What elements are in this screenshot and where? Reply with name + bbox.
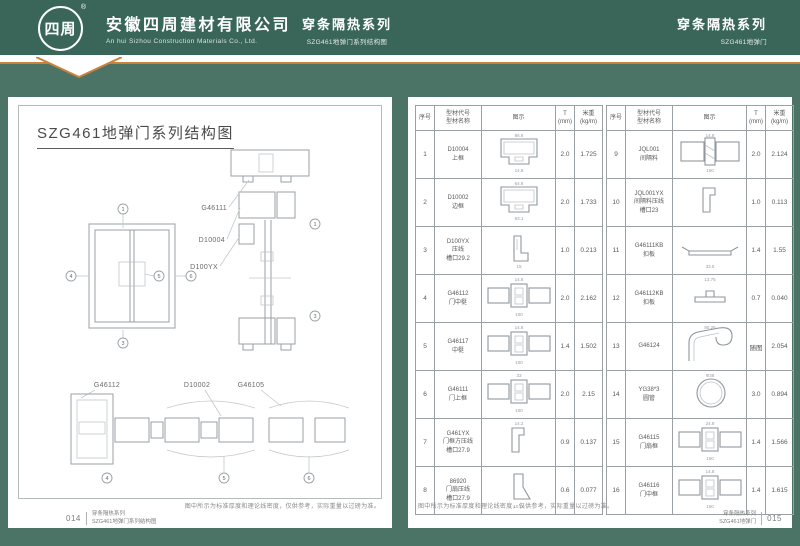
structure-diagram: 1345613G46111D10004D100YXG46112D10002G46… [19, 106, 381, 498]
page-number: 014 [66, 514, 81, 523]
profile-illustration: Φ38 [673, 371, 747, 419]
footer-divider [86, 512, 87, 525]
thickness-value: 1.4 [747, 227, 766, 275]
profile-illustration: 13.75 [673, 275, 747, 323]
row-no: 12 [607, 275, 626, 323]
weight-value: 0.113 [766, 179, 794, 227]
profile-code-name: G46111KB扣板 [626, 227, 673, 275]
svg-text:G46105: G46105 [238, 382, 265, 389]
row-no: 2 [416, 179, 435, 227]
profile-diagram: Φ38 [675, 371, 745, 413]
col-header-code: 型材代号型材名称 [626, 106, 673, 131]
row-no: 15 [607, 419, 626, 467]
row-no: 3 [416, 227, 435, 275]
left-page: SZG461地弹门系列结构图 1345613G46111D10004D100YX… [8, 97, 392, 528]
svg-text:14.8: 14.8 [705, 133, 714, 138]
svg-text:6: 6 [307, 476, 310, 482]
right-page-note: 图中所示为标准厚度和理论线密度，仅供参考，实际重量以过磅为准。 [418, 501, 613, 510]
row-no: 9 [607, 131, 626, 179]
svg-text:1: 1 [121, 207, 124, 213]
footer-caption: 穿条隔热系列 SZG461地弹门系列结构图 [92, 510, 156, 527]
row-no: 10 [607, 179, 626, 227]
svg-text:Φ38: Φ38 [705, 373, 714, 378]
col-header-weight: 米重(kg/m) [575, 106, 603, 131]
profile-illustration [673, 179, 747, 227]
svg-text:100: 100 [706, 456, 714, 461]
svg-text:G46111: G46111 [201, 205, 227, 212]
weight-value: 1.55 [766, 227, 794, 275]
weight-value: 0.894 [766, 371, 794, 419]
right-page-footer: 穿条隔热系列 SZG461地弹门 015 [719, 510, 782, 527]
svg-text:24.9: 24.9 [705, 421, 714, 426]
weight-value: 1.725 [575, 131, 603, 179]
profile-diagram: 14.8100 [675, 131, 745, 173]
weight-value: 1.566 [766, 419, 794, 467]
col-header-no: 序号 [607, 106, 626, 131]
svg-text:5: 5 [157, 274, 160, 280]
svg-text:83.1: 83.1 [514, 216, 523, 221]
table-row: 7G461YX门框方压线槽口27.914.20.90.137 [416, 419, 603, 467]
series-subtitle-right: SZG461地弹门 [677, 36, 767, 46]
table-row: 12G46112KB扣板13.750.70.040 [607, 275, 794, 323]
thickness-value: 2.0 [556, 275, 575, 323]
profile-diagram: 86.814.8 [484, 131, 554, 173]
col-header-t: T(mm) [747, 106, 766, 131]
svg-text:13.75: 13.75 [704, 277, 716, 282]
table-row: 13G4612480.28随图2.054 [607, 323, 794, 371]
series-title-right: 穿条隔热系列 [677, 14, 767, 33]
left-page-footer: 014 穿条隔热系列 SZG461地弹门系列结构图 [66, 510, 156, 527]
svg-text:100: 100 [515, 408, 523, 413]
svg-text:D10002: D10002 [184, 382, 210, 389]
left-page-note: 图中所示为标准厚度和理论线密度，仅供参考，实际重量以过磅为准。 [185, 501, 380, 510]
profile-diagram: 24.9100 [675, 419, 745, 461]
series-title-center: 穿条隔热系列 [262, 14, 432, 33]
col-header-weight: 米重(kg/m) [766, 106, 794, 131]
footer-doc: SZG461地弹门系列结构图 [92, 518, 156, 526]
table-row: 5G46117中梃14.81001.41.502 [416, 323, 603, 371]
profile-illustration: 14.2 [482, 419, 556, 467]
svg-text:15: 15 [516, 264, 522, 269]
profile-diagram: 14.8100 [484, 323, 554, 365]
profile-illustration: 14.8100 [482, 323, 556, 371]
weight-value: 1.615 [766, 467, 794, 515]
profile-code-name: JQL001间隔料 [626, 131, 673, 179]
svg-text:14.8: 14.8 [514, 168, 523, 173]
weight-value: 2.162 [575, 275, 603, 323]
thickness-value: 1.4 [747, 419, 766, 467]
diagram-frame: SZG461地弹门系列结构图 1345613G46111D10004D100YX… [18, 105, 382, 499]
row-no: 6 [416, 371, 435, 419]
profile-code-name: D10002边框 [435, 179, 482, 227]
profile-diagram: 33100 [484, 371, 554, 413]
svg-text:4: 4 [69, 274, 72, 280]
table-row: 14YG38*3圆管Φ383.00.894 [607, 371, 794, 419]
svg-text:6: 6 [189, 274, 192, 280]
profile-diagram [675, 179, 745, 221]
thickness-value: 2.0 [747, 131, 766, 179]
weight-value: 0.213 [575, 227, 603, 275]
weight-value: 2.054 [766, 323, 794, 371]
profile-illustration: 80.28 [673, 323, 747, 371]
series-block-right: 穿条隔热系列 SZG461地弹门 [677, 14, 767, 46]
profile-illustration: 64.883.1 [482, 179, 556, 227]
thickness-value: 1.4 [556, 323, 575, 371]
thickness-value: 0.9 [556, 419, 575, 467]
table-row: 2D10002边框64.883.12.01.733 [416, 179, 603, 227]
thickness-value: 2.0 [556, 179, 575, 227]
table-row: 16G46116门中框14.81001.41.615 [607, 467, 794, 515]
weight-value: 2.15 [575, 371, 603, 419]
profile-illustration: 33100 [482, 371, 556, 419]
table-row: 6G46111门上框331002.02.15 [416, 371, 603, 419]
row-no: 1 [416, 131, 435, 179]
profile-code-name: JQL001YX间隔料压线槽口23 [626, 179, 673, 227]
weight-value: 2.124 [766, 131, 794, 179]
profile-diagram: 64.883.1 [484, 179, 554, 221]
svg-text:3: 3 [121, 341, 124, 347]
svg-text:100: 100 [706, 504, 714, 509]
thickness-value: 3.0 [747, 371, 766, 419]
profile-diagram: 13.75 [675, 275, 745, 317]
profile-code-name: G46117中梃 [435, 323, 482, 371]
series-subtitle-center: SZG461地弹门系列结构图 [262, 36, 432, 46]
table-row: 3D100YX压线槽口29.2151.00.213 [416, 227, 603, 275]
row-no: 7 [416, 419, 435, 467]
profile-illustration: 14.8100 [482, 275, 556, 323]
row-no: 4 [416, 275, 435, 323]
weight-value: 1.733 [575, 179, 603, 227]
page-number: 015 [767, 514, 782, 523]
row-no: 11 [607, 227, 626, 275]
spec-tables: 序号型材代号型材名称图示T(mm)米重(kg/m)1D10004上框86.814… [415, 105, 794, 515]
svg-text:14.8: 14.8 [705, 469, 714, 474]
thickness-value: 2.0 [556, 371, 575, 419]
profile-code-name: G46124 [626, 323, 673, 371]
svg-text:1: 1 [313, 222, 316, 228]
col-header-diagram: 图示 [482, 106, 556, 131]
profile-diagram: 15 [484, 227, 554, 269]
svg-text:4: 4 [105, 476, 108, 482]
footer-doc: SZG461地弹门 [719, 518, 756, 526]
registered-trademark-icon: ® [81, 4, 86, 11]
footer-series: 穿条隔热系列 [92, 510, 156, 518]
table-row: 9JQL001间隔料14.81002.02.124 [607, 131, 794, 179]
profile-illustration: 33.5 [673, 227, 747, 275]
thickness-value: 1.4 [747, 467, 766, 515]
footer-caption: 穿条隔热系列 SZG461地弹门 [719, 510, 756, 527]
footer-series: 穿条隔热系列 [719, 510, 756, 518]
footer-divider [761, 512, 762, 525]
svg-text:33.5: 33.5 [705, 264, 714, 269]
profile-code-name: D100YX压线槽口29.2 [435, 227, 482, 275]
diagram-title: SZG461地弹门系列结构图 [37, 122, 234, 149]
profile-illustration: 86.814.8 [482, 131, 556, 179]
profile-code-name: G46112KB扣板 [626, 275, 673, 323]
svg-text:64.8: 64.8 [514, 181, 523, 186]
series-block-center: 穿条隔热系列 SZG461地弹门系列结构图 [262, 14, 432, 46]
weight-value: 0.137 [575, 419, 603, 467]
svg-text:14.8: 14.8 [514, 325, 523, 330]
svg-text:100: 100 [515, 312, 523, 317]
profile-illustration: 15 [482, 227, 556, 275]
svg-text:D100YX: D100YX [190, 264, 218, 271]
profile-diagram: 14.8100 [484, 275, 554, 317]
profile-code-name: G46115门扇框 [626, 419, 673, 467]
thickness-value: 2.0 [556, 131, 575, 179]
thickness-value: 1.0 [747, 179, 766, 227]
profile-diagram: 14.2 [484, 419, 554, 461]
col-header-code: 型材代号型材名称 [435, 106, 482, 131]
svg-text:3: 3 [313, 314, 316, 320]
thickness-value: 随图 [747, 323, 766, 371]
profile-code-name: G46111门上框 [435, 371, 482, 419]
logo-mark: 四周 [38, 6, 83, 51]
svg-text:100: 100 [515, 360, 523, 365]
profile-code-name: G46116门中框 [626, 467, 673, 515]
svg-text:5: 5 [222, 476, 225, 482]
page-header: 四周 ® 安徽四周建材有限公司 An hui Sizhou Constructi… [0, 0, 800, 55]
row-no: 13 [607, 323, 626, 371]
profile-code-name: YG38*3圆管 [626, 371, 673, 419]
svg-text:14.2: 14.2 [514, 421, 523, 426]
svg-text:D10004: D10004 [199, 237, 225, 244]
profile-illustration: 24.9100 [673, 419, 747, 467]
profile-code-name: G46112门中梃 [435, 275, 482, 323]
svg-text:14.8: 14.8 [514, 277, 523, 282]
table-row: 1D10004上框86.814.82.01.725 [416, 131, 603, 179]
profile-illustration: 14.8100 [673, 131, 747, 179]
thickness-value: 0.7 [747, 275, 766, 323]
col-header-no: 序号 [416, 106, 435, 131]
table-row: 10JQL001YX间隔料压线槽口231.00.113 [607, 179, 794, 227]
svg-text:80.28: 80.28 [704, 325, 716, 330]
profile-diagram: 80.28 [675, 323, 745, 365]
svg-text:33: 33 [516, 373, 522, 378]
profile-code-name: G461YX门框方压线槽口27.9 [435, 419, 482, 467]
svg-text:G46112: G46112 [94, 382, 120, 389]
profile-diagram: 14.8100 [675, 467, 745, 509]
profile-code-name: D10004上框 [435, 131, 482, 179]
spec-table-left: 序号型材代号型材名称图示T(mm)米重(kg/m)1D10004上框86.814… [415, 105, 603, 515]
row-no: 5 [416, 323, 435, 371]
table-row: 11G46111KB扣板33.51.41.55 [607, 227, 794, 275]
profile-diagram: 33.5 [675, 227, 745, 269]
svg-text:86.8: 86.8 [514, 133, 523, 138]
col-header-t: T(mm) [556, 106, 575, 131]
col-header-diagram: 图示 [673, 106, 747, 131]
weight-value: 0.040 [766, 275, 794, 323]
right-page: 序号型材代号型材名称图示T(mm)米重(kg/m)1D10004上框86.814… [408, 97, 792, 528]
weight-value: 1.502 [575, 323, 603, 371]
thickness-value: 1.0 [556, 227, 575, 275]
company-logo: 四周 ® [38, 6, 84, 52]
spec-table-right: 序号型材代号型材名称图示T(mm)米重(kg/m)9JQL001间隔料14.81… [606, 105, 794, 515]
chevron-ornament [36, 57, 122, 81]
svg-text:100: 100 [706, 168, 714, 173]
row-no: 14 [607, 371, 626, 419]
table-row: 4G46112门中梃14.81002.02.162 [416, 275, 603, 323]
logo-text: 四周 [44, 18, 76, 39]
profile-illustration: 14.8100 [673, 467, 747, 515]
table-row: 15G46115门扇框24.91001.41.566 [607, 419, 794, 467]
